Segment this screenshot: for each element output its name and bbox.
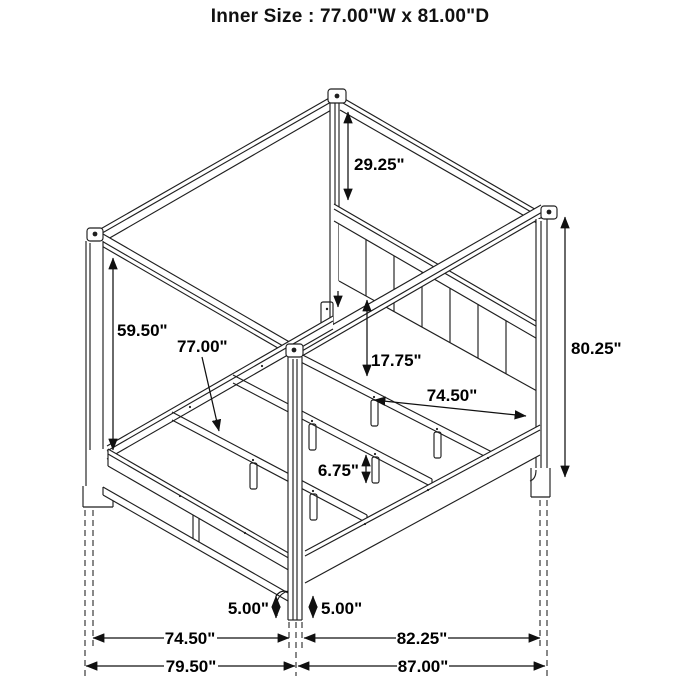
dim-label-clearance-left: 5.00" xyxy=(228,599,269,618)
dim-overall-height: 80.25" xyxy=(565,217,622,477)
slat-leg xyxy=(250,463,257,489)
dim-label-post-inner-height: 59.50" xyxy=(117,321,168,340)
dim-front-width-overall: 79.50" xyxy=(86,657,295,676)
bed-dimension-diagram: 29.25" 59.50" 77.00" 17.75" 74.50" xyxy=(0,0,700,700)
dim-label-clearance-right: 5.00" xyxy=(321,599,362,618)
dim-label-headboard-to-rail: 17.75" xyxy=(371,351,422,370)
dim-front-width-inner: 74.50" xyxy=(93,629,289,648)
dim-label-front-width-inner: 74.50" xyxy=(165,629,216,648)
slat-leg xyxy=(310,494,317,520)
dim-label-overall-height: 80.25" xyxy=(571,339,622,358)
dim-label-side-depth-inner: 82.25" xyxy=(397,629,448,648)
dim-label-canopy-to-headboard: 29.25" xyxy=(354,155,405,174)
dim-floor-clearance-right: 5.00" xyxy=(313,596,362,618)
dim-slat-leg-height: 6.75" xyxy=(318,455,366,483)
storage-footboard xyxy=(103,449,292,616)
front-post xyxy=(288,357,302,620)
slat-leg xyxy=(309,424,316,450)
dim-label-side-rail-length: 74.50" xyxy=(427,386,478,405)
canopy-bed-drawing xyxy=(83,89,557,620)
dim-side-depth-inner: 82.25" xyxy=(304,629,540,648)
dim-side-depth-overall: 87.00" xyxy=(298,657,545,676)
extension-lines xyxy=(85,500,547,676)
canopy-frame xyxy=(97,97,545,243)
dim-label-front-width-overall: 79.50" xyxy=(166,657,217,676)
slat-leg xyxy=(434,432,441,458)
dim-label-side-depth-overall: 87.00" xyxy=(398,657,449,676)
right-side-rail xyxy=(305,425,540,583)
dim-label-slat-width: 77.00" xyxy=(177,337,228,356)
diagram-page: Inner Size : 77.00"W x 81.00"D xyxy=(0,0,700,700)
dim-label-slat-leg-height: 6.75" xyxy=(318,461,359,480)
slat-leg xyxy=(372,457,379,483)
dim-floor-clearance-left: 5.00" xyxy=(228,591,288,618)
slat-leg xyxy=(371,400,378,426)
